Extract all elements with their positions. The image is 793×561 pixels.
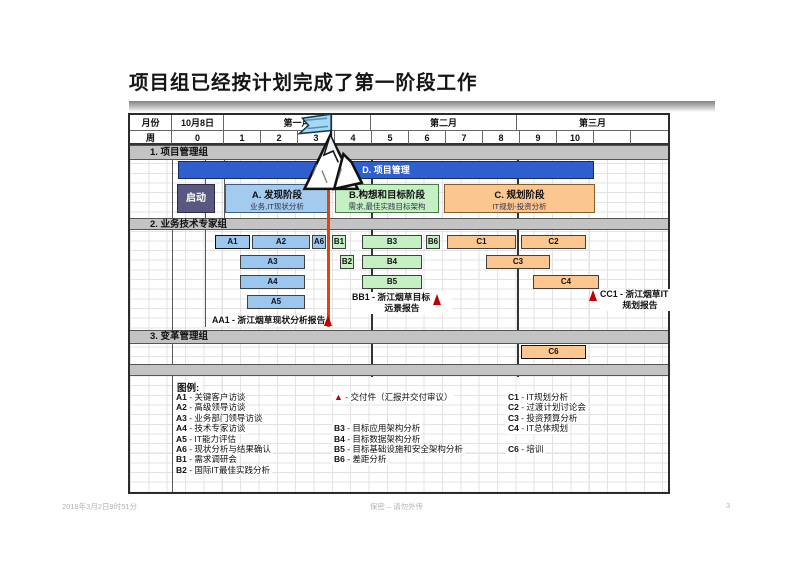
task-bar-b2: B2 [340,255,354,269]
task-bar-c1: C1 [447,235,516,249]
task-bar-c6: C6 [521,345,586,359]
task-bar-a5: A5 [247,295,305,309]
header-week-7: 7 [446,131,483,145]
header-week-blank-10 [594,131,631,145]
header-month-2: 第二月 [371,115,517,131]
legend-item-b5: B5 - 目标基础设施和安全架构分析 [332,444,465,454]
milestone-cc1-triangle-icon [589,290,597,301]
section-title-1: 1. 项目管理组 [150,147,208,158]
legend-item-a6: A6 - 现状分析与结果确认 [174,444,273,454]
gantt-chart: 月份 10月8日 第一月 第二月 第三月 周 0 12345678910 1. … [128,113,670,494]
milestone-cc1-text2: 规划报告 [600,300,680,311]
task-bar-c2: C2 [521,235,586,249]
task-bar-b6: B6 [426,235,440,249]
title-divider [129,101,715,112]
label-column-rule [172,115,173,492]
header-week-8: 8 [483,131,520,145]
task-bar-a3: A3 [240,255,305,269]
milestone-aa1-triangle-icon [324,315,332,326]
task-bar-b1: B1 [332,235,346,249]
header-week-6: 6 [409,131,446,145]
task-bar-a1: A1 [215,235,250,249]
legend-item-deliverable: ▲ - 交付件（汇报并交付审议） [332,392,454,402]
header-week-blank-11 [631,131,668,145]
legend-item-c6: C6 - 培训 [506,444,545,454]
milestone-bb1-triangle-icon [433,294,441,305]
header-week-col: 周 [130,131,172,145]
legend-item-b1: B1 - 需求调研会 [174,454,239,464]
legend-item-b3: B3 - 目标应用架构分析 [332,423,422,433]
task-bar-b4: B4 [362,255,422,269]
header-week-9: 9 [520,131,557,145]
legend-item-b6: B6 - 差距分析 [332,454,388,464]
milestone-cc1-label: CC1 - 浙江烟草IT 规划报告 [600,289,680,311]
footer-classification: 保密 – 请勿外传 [0,501,793,512]
section-title-3: 3. 变革管理组 [150,331,208,342]
empty-band [130,364,668,376]
header-start-date: 10月8日 [172,115,224,131]
management-bar: D. 项目管理 [178,161,594,179]
section-title-2: 2. 业务技术专家组 [150,219,227,230]
header-week-10: 10 [557,131,594,145]
task-bar-a6: A6 [312,235,326,249]
legend-item-a1: A1 - 关键客户访谈 [174,392,247,402]
header-month-col: 月份 [130,115,172,131]
header-week-0: 0 [172,131,224,145]
legend-item-c1: C1 - IT规划分析 [506,392,570,402]
legend-item-a3: A3 - 业务部门领导访谈 [174,413,264,423]
milestone-aa1-text: AA1 - 浙江烟草现状分析报告 [212,315,325,325]
legend-item-a5: A5 - IT能力评估 [174,434,238,444]
legend-item-a4: A4 - 技术专家访谈 [174,423,247,433]
header-month-3: 第三月 [517,115,668,131]
milestone-cc1-text: CC1 - 浙江烟草IT [600,289,668,299]
mountain-flag-icon [290,109,364,193]
slide: 项目组已经按计划完成了第一阶段工作 月份 10月8日 第一月 第二月 第三月 周… [0,0,793,561]
legend-item-b2: B2 - 国际IT最佳实践分析 [174,465,272,475]
section-band-1: 1. 项目管理组 [130,145,668,160]
deliverable-triangle-icon: ▲ [334,392,343,402]
task-bar-a4: A4 [240,275,305,289]
task-bar-c3: C3 [486,255,550,269]
legend-item-a2: A2 - 高级领导访谈 [174,402,247,412]
milestone-aa1-label: AA1 - 浙江烟草现状分析报告 [212,315,325,326]
section-band-3: 3. 变革管理组 [130,330,668,344]
header-week-5: 5 [372,131,409,145]
phase-b-subtitle: 需求,最佳实践目标架构 [336,201,438,212]
legend-item-c3: C3 - 投资预算分析 [506,413,579,423]
phase-a-subtitle: 业务,IT现状分析 [226,201,328,212]
header-week-1: 1 [224,131,261,145]
phase-c-subtitle: IT规划-投资分析 [445,201,594,212]
phase-c-title: C. 规划阶段 [445,187,594,201]
kickoff-box: 启动 [177,184,215,213]
task-bar-c4: C4 [533,275,599,289]
phase-c-planning: C. 规划阶段 IT规划-投资分析 [444,184,595,213]
task-bar-b5: B5 [362,275,422,289]
legend-item-c2: C2 - 过渡计划讨论会 [506,402,588,412]
section-band-2: 2. 业务技术专家组 [130,218,668,230]
footer-page-number: 3 [726,501,730,510]
page-title: 项目组已经按计划完成了第一阶段工作 [129,66,478,95]
task-bar-b3: B3 [362,235,422,249]
milestone-bb1-text: BB1 - 浙江烟草目标 [352,292,430,302]
task-bar-a2: A2 [252,235,310,249]
legend-item-c4: C4 - IT总体规划 [506,423,570,433]
legend-item-b4: B4 - 目标数据架构分析 [332,434,422,444]
